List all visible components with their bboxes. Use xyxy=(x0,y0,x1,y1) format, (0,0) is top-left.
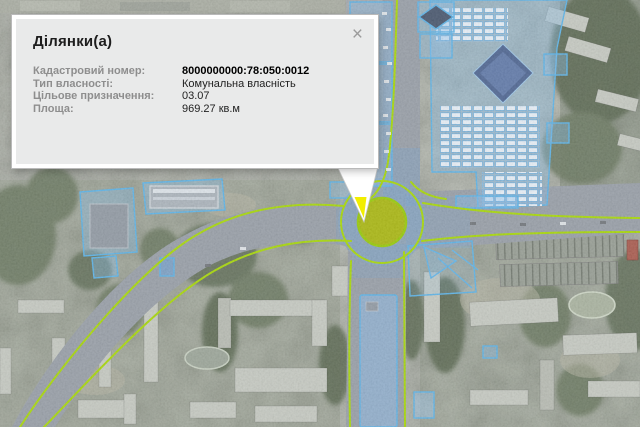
field-value: Комунальна власність xyxy=(182,78,296,91)
field-row-area: Площа: 969.27 кв.м xyxy=(33,103,374,116)
map-viewer: Ділянки(а) × Кадастровий номер: 80000000… xyxy=(0,0,640,427)
popup-fields: Кадастровий номер: 8000000000:78:050:001… xyxy=(33,65,374,115)
close-icon[interactable]: × xyxy=(352,27,363,43)
field-value: 03.07 xyxy=(182,90,210,103)
field-label: Площа: xyxy=(33,103,182,116)
field-value: 8000000000:78:050:0012 xyxy=(182,65,309,78)
popup-title: Ділянки(а) xyxy=(33,33,374,50)
field-row-cadastral-number: Кадастровий номер: 8000000000:78:050:001… xyxy=(33,65,374,78)
field-label: Тип власності: xyxy=(33,78,182,91)
field-value: 969.27 кв.м xyxy=(182,103,240,116)
parcel-info-popup: Ділянки(а) × Кадастровий номер: 80000000… xyxy=(12,15,378,168)
field-label: Кадастровий номер: xyxy=(33,65,182,78)
field-row-ownership-type: Тип власності: Комунальна власність xyxy=(33,78,374,91)
field-row-designated-purpose: Цільове призначення: 03.07 xyxy=(33,90,374,103)
field-label: Цільове призначення: xyxy=(33,90,182,103)
